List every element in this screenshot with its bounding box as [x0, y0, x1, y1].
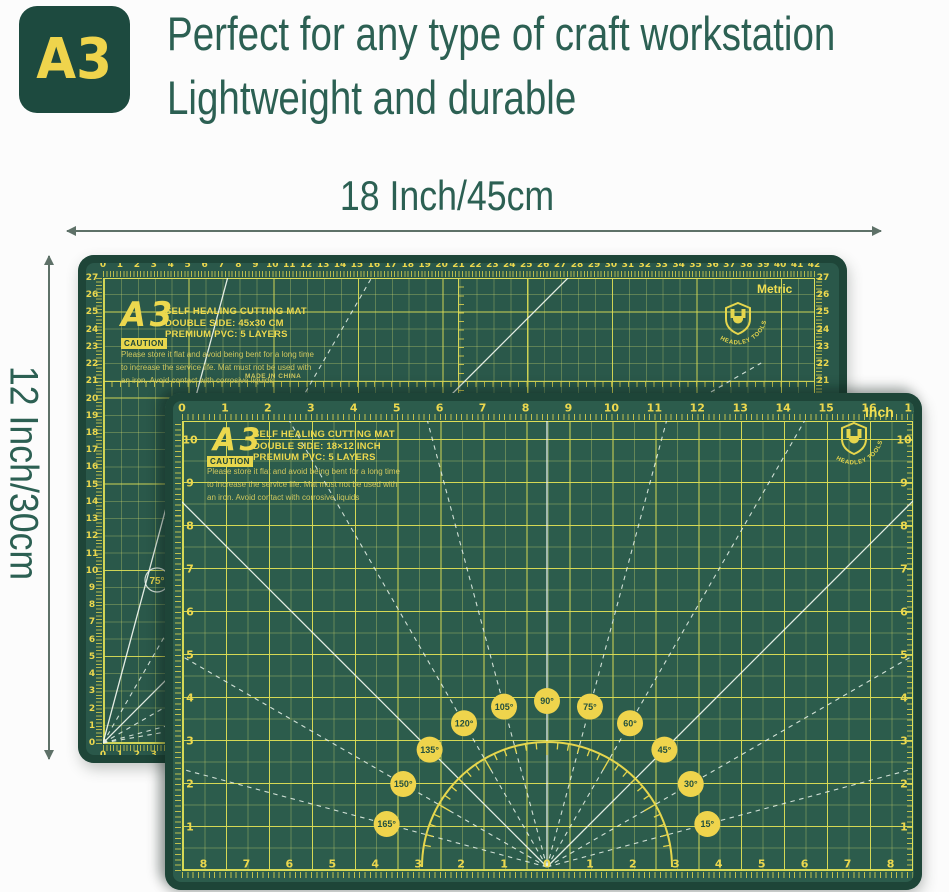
caution-line: an iron. Avoid contact with corrosive li… — [207, 493, 359, 502]
ruler-number: 0 — [100, 750, 106, 760]
ruler-number: 39 — [757, 260, 770, 270]
ruler-number: 27 — [554, 260, 567, 270]
ruler-number: 6 — [436, 402, 444, 415]
ruler-number: 1 — [89, 721, 95, 731]
ruler-number: 8 — [89, 600, 95, 610]
mat-spec-text: SELF HEALING CUTTING MAT DOUBLE SIDE: 45… — [165, 306, 307, 341]
ruler-number: 3 — [307, 402, 315, 415]
ruler-number: 18 — [401, 260, 414, 270]
ruler-number: 28 — [571, 260, 584, 270]
ruler-number: 31 — [622, 260, 635, 270]
ruler-number: 2 — [89, 704, 95, 714]
spec-line: PREMIUM PVC: 5 LAYERS — [253, 452, 376, 463]
ruler-number: 4 — [89, 669, 95, 679]
ruler-number: 1 — [117, 260, 123, 270]
size-badge: A3 — [19, 6, 130, 113]
spec-line: DOUBLE SIDE: 18×12 INCH — [253, 441, 381, 452]
spec-line: SELF HEALING CUTTING MAT — [253, 429, 395, 440]
ruler-number: 15 — [351, 260, 364, 270]
ruler-ticks-bottom — [182, 872, 913, 878]
ruler-number: 0 — [89, 738, 95, 748]
caution-text: Please store it flat and avoid being ben… — [207, 465, 400, 504]
ruler-number: 42 — [808, 260, 821, 270]
ruler-ticks-left — [175, 421, 181, 871]
ruler-number: 22 — [469, 260, 482, 270]
cutting-mat-inch-side: 15°30°45°60°75°90°105°120°135°150°165°HE… — [165, 393, 922, 890]
ruler-number: 13 — [733, 402, 748, 415]
ruler-number: 37 — [723, 260, 736, 270]
side-label-metric: Metric — [757, 282, 792, 296]
ruler-number: 0 — [178, 402, 186, 415]
ruler-number: 9 — [252, 260, 258, 270]
caution-line: to increase the service life. Mat must n… — [121, 363, 311, 372]
ruler-number: 29 — [588, 260, 601, 270]
mat-spec-text: SELF HEALING CUTTING MAT DOUBLE SIDE: 18… — [253, 429, 395, 464]
ruler-number: 38 — [740, 260, 753, 270]
product-image: A3 Perfect for any type of craft worksta… — [0, 0, 949, 892]
size-badge-label: A3 — [37, 27, 113, 92]
ruler-number: 10 — [604, 402, 619, 415]
ruler-number: 40 — [774, 260, 787, 270]
width-dimension-label: 18 Inch/45cm — [340, 172, 554, 220]
caution-line: Please store it flat and avoid being ben… — [207, 467, 400, 476]
spec-line: DOUBLE SIDE: 45x30 CM — [165, 318, 284, 329]
ruler-number: 26 — [537, 260, 550, 270]
ruler-ticks-right — [907, 421, 912, 871]
caution-text: Please store it flat and avoid being ben… — [121, 348, 314, 387]
ruler-ticks-top — [182, 414, 913, 420]
arrow-left-icon — [66, 226, 76, 236]
caution-line: Please store it flat and avoid being ben… — [121, 350, 314, 359]
ruler-number: 9 — [89, 583, 95, 593]
ruler-number: 3 — [89, 686, 95, 696]
ruler-number: 3 — [151, 260, 157, 270]
ruler-number: 0 — [100, 260, 106, 270]
ruler-number: 8 — [235, 260, 241, 270]
ruler-number: 13 — [317, 260, 330, 270]
ruler-number: 21 — [452, 260, 465, 270]
arrow-right-icon — [872, 226, 882, 236]
headline-secondary: Lightweight and durable — [167, 70, 576, 125]
ruler-number: 24 — [503, 260, 516, 270]
ruler-number: 2 — [134, 750, 140, 760]
ruler-number: 5 — [185, 260, 191, 270]
ruler-number: 20 — [435, 260, 448, 270]
spec-line: SELF HEALING CUTTING MAT — [165, 306, 307, 317]
ruler-number: 12 — [300, 260, 313, 270]
caution-line: to increase the service life. Mat must n… — [207, 480, 397, 489]
ruler-number: 10 — [266, 260, 279, 270]
ruler-number: 41 — [791, 260, 804, 270]
ruler-number: 36 — [706, 260, 719, 270]
ruler-number: 11 — [283, 260, 296, 270]
ruler-number: 33 — [655, 260, 668, 270]
ruler-ticks-left — [96, 278, 102, 744]
ruler-number: 14 — [334, 260, 347, 270]
ruler-number: 4 — [168, 260, 174, 270]
ruler-number: 12 — [690, 402, 705, 415]
ruler-number: 7 — [89, 617, 95, 627]
ruler-number: 17 — [385, 260, 398, 270]
ruler-number: 30 — [605, 260, 618, 270]
ruler-number: 7 — [218, 260, 224, 270]
ruler-number: 6 — [89, 635, 95, 645]
ruler-number: 34 — [672, 260, 685, 270]
ruler-number: 3 — [151, 750, 157, 760]
ruler-number: 32 — [638, 260, 651, 270]
ruler-number: 8 — [522, 402, 530, 415]
width-dimension-arrow — [67, 230, 881, 232]
ruler-number: 9 — [565, 402, 573, 415]
ruler-number: 17 — [904, 402, 919, 415]
ruler-number: 11 — [647, 402, 662, 415]
height-dimension-arrow — [48, 256, 50, 759]
ruler-number: 5 — [393, 402, 401, 415]
ruler-number: 16 — [368, 260, 381, 270]
ruler-number: 1 — [117, 750, 123, 760]
headline-primary: Perfect for any type of craft workstatio… — [167, 6, 835, 61]
ruler-number: 35 — [689, 260, 702, 270]
ruler-number: 23 — [486, 260, 499, 270]
ruler-ticks-top — [103, 271, 815, 277]
arrow-up-icon — [44, 255, 54, 265]
ruler-number: 1 — [221, 402, 229, 415]
side-label-inch: Inch — [865, 404, 894, 420]
ruler-number: 5 — [89, 652, 95, 662]
ruler-number: 15 — [818, 402, 833, 415]
ruler-number: 4 — [350, 402, 358, 415]
ruler-number: 2 — [264, 402, 272, 415]
ruler-number: 19 — [418, 260, 431, 270]
arrow-down-icon — [44, 750, 54, 760]
made-in-label: MADE IN CHINA — [245, 373, 301, 380]
ruler-number: 6 — [201, 260, 207, 270]
ruler-number: 2 — [134, 260, 140, 270]
height-dimension-label: 12 Inch/30cm — [1, 366, 47, 580]
ruler-number: 25 — [520, 260, 533, 270]
ruler-number: 7 — [479, 402, 487, 415]
ruler-number: 14 — [776, 402, 791, 415]
spec-line: PREMIUM PVC: 5 LAYERS — [165, 329, 288, 340]
